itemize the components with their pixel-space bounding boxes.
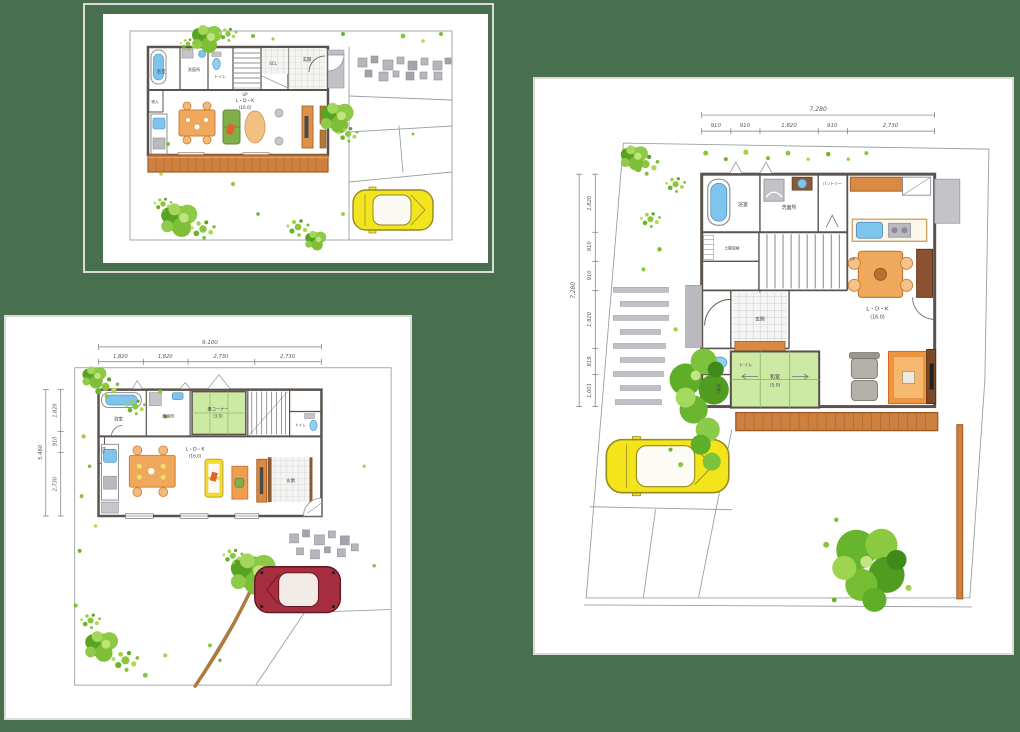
room-label-up: UP	[850, 256, 856, 261]
room-label-closet: 物入	[102, 447, 107, 455]
planting-strips	[613, 287, 668, 404]
bay-window	[935, 179, 960, 223]
room-label-up: UP	[242, 92, 248, 97]
floor-plan-drawing-b: 9,100 1,820 1,820 2,730 2,730 5,460 1,82…	[6, 317, 410, 718]
dimension-top: 7,280 910 910 1,820 910 2,730	[702, 106, 935, 134]
car-red	[255, 567, 341, 613]
sofa	[223, 110, 240, 144]
house	[686, 162, 960, 407]
dimension-left: 7,280 1,820 910 910 1,820 819 1,001	[571, 174, 598, 406]
windows	[125, 514, 258, 518]
tv-board	[257, 459, 267, 502]
svg-text:819: 819	[587, 357, 593, 367]
room-label-ldk-area: (16.0)	[239, 105, 252, 110]
svg-text:910: 910	[827, 123, 838, 129]
dim-total-left: 7,280	[571, 282, 577, 299]
rug	[888, 351, 928, 403]
paving-stones	[358, 56, 451, 81]
roof-vents	[730, 162, 772, 173]
room-label-tatami: 畳コーナー	[208, 406, 229, 412]
room-label-entrance: 玄関	[755, 315, 765, 322]
porch	[328, 50, 344, 88]
room-label-toilet: トイレ	[295, 422, 307, 427]
svg-text:910: 910	[587, 270, 593, 281]
svg-text:910: 910	[740, 123, 751, 129]
window-mullion	[320, 130, 326, 148]
dining-set	[848, 251, 912, 297]
room-label-scl: SCL	[269, 61, 277, 66]
room-label-bath: 浴室	[114, 415, 124, 422]
room-label-bath: 浴室	[738, 201, 748, 208]
dim-total-left: 5,460	[38, 444, 44, 460]
entrance-tile	[289, 48, 325, 89]
room-label-entrance: 玄関	[286, 477, 294, 483]
room-label-doma: 土間収納	[724, 245, 739, 250]
garden-edge	[957, 425, 963, 599]
room-label-toilet: トイレ	[214, 74, 226, 79]
room-label-entrance: 玄関	[303, 56, 312, 63]
room-label-tatami-area: (3.0)	[213, 413, 223, 418]
svg-text:2,730: 2,730	[53, 477, 59, 491]
car-yellow	[353, 187, 433, 233]
svg-text:2,730: 2,730	[883, 123, 899, 129]
bathtub-icon	[708, 179, 730, 225]
tv-board	[302, 106, 313, 148]
chair	[275, 137, 283, 145]
room-label-toilet: トイレ	[739, 364, 753, 369]
chair	[275, 109, 283, 117]
svg-text:2,730: 2,730	[280, 354, 295, 360]
floor-plan-card-b[interactable]: 9,100 1,820 1,820 2,730 2,730 5,460 1,82…	[4, 315, 412, 720]
doma-storage	[704, 235, 714, 259]
room-label-hanging-closet: 吊押入	[716, 384, 721, 396]
svg-text:1,001: 1,001	[587, 383, 593, 398]
room-label-washitsu: 和室	[770, 374, 780, 381]
house	[99, 375, 322, 519]
bathtub-icon	[151, 50, 166, 84]
room-label-ldk: L・D・K	[866, 306, 889, 312]
rug	[245, 111, 265, 143]
svg-text:1,820: 1,820	[53, 403, 59, 417]
room-label-washitsu-area: (5.0)	[770, 383, 781, 389]
svg-text:1,820: 1,820	[587, 311, 593, 327]
dimension-top: 9,100 1,820 1,820 2,730 2,730	[99, 340, 322, 365]
svg-text:1,820: 1,820	[113, 354, 128, 360]
low-table	[232, 466, 248, 499]
svg-text:1,820: 1,820	[587, 195, 593, 211]
paving-stones	[290, 530, 359, 559]
svg-text:910: 910	[711, 123, 722, 129]
floor-plan-card-a[interactable]: 浴室 洗面所 トイレ UP SCL 玄関 物入 L・D・K (16.0)	[103, 14, 488, 263]
toilet-icon	[212, 52, 221, 70]
kitchen	[102, 444, 119, 513]
room-label-ldk-area: (16.0)	[870, 314, 885, 320]
floor-plan-card-c[interactable]: 7,280 910 910 1,820 910 2,730 7,280 1,82…	[533, 77, 1014, 655]
cabinet	[917, 249, 933, 297]
svg-text:2,730: 2,730	[214, 354, 229, 360]
room-label-ldk: L・D・K	[186, 446, 206, 452]
roof-vents	[132, 375, 230, 389]
wood-deck	[148, 155, 328, 172]
room-label-ldk-area: (16.0)	[189, 453, 202, 458]
floor-plan-drawing-c: 7,280 910 910 1,820 910 2,730 7,280 1,82…	[535, 79, 1012, 653]
room-label-washroom: 洗面所	[188, 66, 201, 73]
svg-text:910: 910	[587, 241, 593, 252]
room-label-washroom: 洗面所	[782, 204, 797, 211]
dim-total-top: 7,280	[810, 106, 827, 113]
room-label-ldk: L・D・K	[236, 98, 255, 104]
page-background: { "page": { "colors": { "background": "#…	[0, 0, 1020, 732]
sofa	[849, 352, 879, 400]
svg-text:1,820: 1,820	[781, 123, 797, 129]
room-label-washroom: 洗面所	[162, 412, 174, 418]
dim-total-top: 9,100	[202, 340, 218, 346]
room-label-bath: 浴室	[156, 68, 166, 75]
room-label-closet: 物入	[151, 99, 159, 104]
room-label-pantry: パントリー	[823, 181, 842, 186]
floor-plan-drawing-a: 浴室 洗面所 トイレ UP SCL 玄関 物入 L・D・K (16.0)	[103, 14, 488, 263]
sofa	[205, 459, 223, 497]
tv-board	[927, 349, 936, 403]
dimension-left: 5,460 1,820 910 2,730	[38, 390, 64, 516]
svg-text:1,820: 1,820	[158, 354, 173, 360]
svg-text:910: 910	[53, 437, 59, 446]
porch-canopy	[686, 285, 702, 347]
kitchen	[151, 114, 167, 154]
